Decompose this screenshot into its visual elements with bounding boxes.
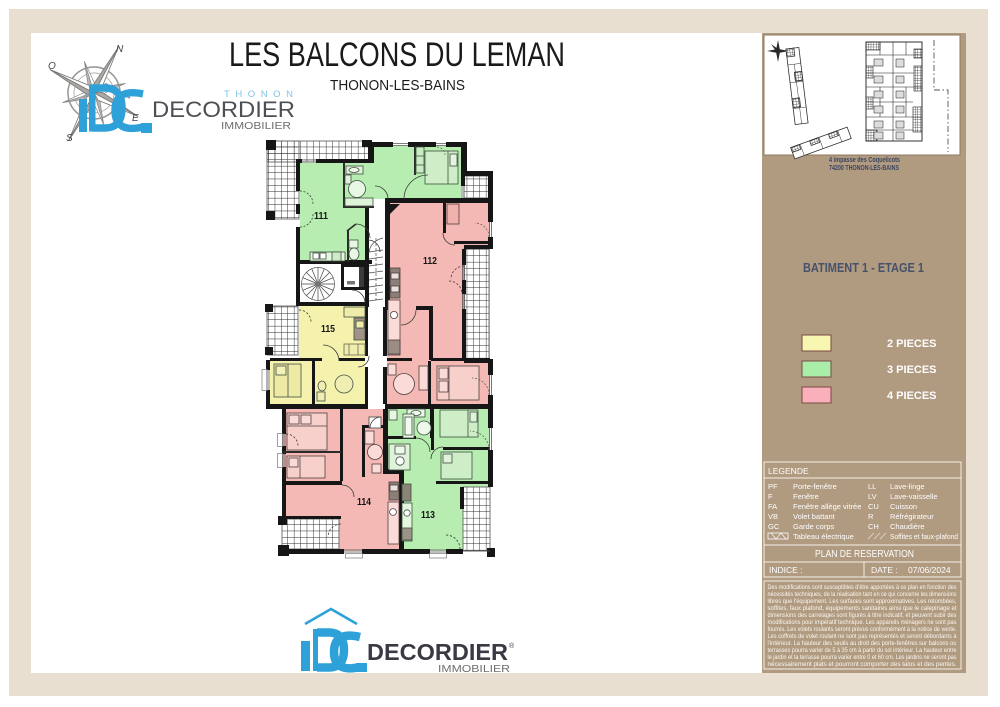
svg-text:Chaudière: Chaudière <box>890 522 925 531</box>
svg-text:Des modifications sont suscept: Des modifications sont susceptibles d'êt… <box>768 584 957 591</box>
svg-text:Réfrégirateur: Réfrégirateur <box>890 512 934 521</box>
svg-text:R: R <box>868 512 874 521</box>
svg-text:Les coffrets de volet roulant: Les coffrets de volet roulant ne sont pa… <box>768 633 957 640</box>
svg-text:BATIMENT 1 - ETAGE 1: BATIMENT 1 - ETAGE 1 <box>803 260 924 275</box>
svg-text:F: F <box>768 492 773 501</box>
svg-text:INDICE :: INDICE : <box>769 565 803 575</box>
svg-text:112: 112 <box>423 255 437 267</box>
svg-text:l'intérieur. La hauteur des se: l'intérieur. La hauteur des seuils au dr… <box>768 640 957 647</box>
svg-text:LES BALCONS DU LEMAN: LES BALCONS DU LEMAN <box>229 36 565 74</box>
svg-text:Volet battant: Volet battant <box>793 512 836 521</box>
svg-text:113: 113 <box>421 509 435 521</box>
svg-text:Lave-linge: Lave-linge <box>890 482 925 491</box>
svg-text:LL: LL <box>868 482 876 491</box>
svg-text:74200 THONON-LES-BAINS: 74200 THONON-LES-BAINS <box>829 165 899 172</box>
svg-text:modifications pour impératif t: modifications pour impératif technique. … <box>768 619 957 626</box>
svg-text:terrasses pourra varier de 5 à: terrasses pourra varier de 5 à 35 cm à p… <box>768 647 957 654</box>
svg-text:Soffites et faux-plafond: Soffites et faux-plafond <box>890 532 958 541</box>
svg-text:nécessairement plats et pourro: nécessairement plats et pourront comport… <box>768 661 957 668</box>
svg-text:dimensions des carrelages sont: dimensions des carrelages sont figurés à… <box>768 612 957 619</box>
svg-text:Lave-vaisselle: Lave-vaisselle <box>890 492 938 501</box>
svg-text:IMMOBILIER: IMMOBILIER <box>221 120 291 132</box>
svg-text:2 PIECES: 2 PIECES <box>887 338 937 350</box>
svg-text:GC: GC <box>768 522 780 531</box>
svg-text:THONON-LES-BAINS: THONON-LES-BAINS <box>330 78 465 94</box>
svg-text:07/06/2024: 07/06/2024 <box>908 565 951 575</box>
svg-text:111: 111 <box>314 210 328 222</box>
svg-text:Porte-fenêtre: Porte-fenêtre <box>793 482 837 491</box>
svg-text:O: O <box>48 61 56 72</box>
svg-text:IMMOBILIER: IMMOBILIER <box>438 663 510 675</box>
svg-text:Garde corps: Garde corps <box>793 522 835 531</box>
svg-text:PF: PF <box>768 482 778 491</box>
svg-text:DECORDIER: DECORDIER <box>152 97 295 122</box>
svg-text:115: 115 <box>321 323 335 335</box>
svg-text:PLAN DE RESERVATION: PLAN DE RESERVATION <box>815 549 914 560</box>
svg-text:4 PIECES: 4 PIECES <box>887 390 937 402</box>
svg-text:DECORDIER: DECORDIER <box>367 639 508 665</box>
svg-text:Fenêtre allège vitrée: Fenêtre allège vitrée <box>793 502 861 511</box>
svg-text:S: S <box>66 133 73 144</box>
svg-text:CH: CH <box>868 522 879 531</box>
svg-text:4 impasse des Coquelicots: 4 impasse des Coquelicots <box>829 157 900 164</box>
svg-text:E: E <box>132 113 139 124</box>
svg-text:Cuisson: Cuisson <box>890 502 917 511</box>
svg-text:LV: LV <box>868 492 877 501</box>
svg-text:®: ® <box>509 642 515 650</box>
svg-text:N: N <box>116 44 124 55</box>
svg-text:Tableau électrique: Tableau électrique <box>793 532 854 541</box>
svg-text:Fenêtre: Fenêtre <box>793 492 819 501</box>
svg-text:le jardin et la terrasse pourr: le jardin et la terrasse pourra varier e… <box>768 654 957 661</box>
svg-text:libres que l'équipement. Les s: libres que l'équipement. Les surfaces so… <box>768 598 957 605</box>
svg-text:soffites, faux plafond, équipe: soffites, faux plafond, équipements sani… <box>768 605 957 612</box>
svg-text:CU: CU <box>868 502 879 511</box>
svg-text:3 PIECES: 3 PIECES <box>887 364 937 376</box>
svg-text:VB: VB <box>768 512 778 521</box>
svg-text:DATE :: DATE : <box>871 565 898 575</box>
svg-text:fournis. Les volets roulants s: fournis. Les volets roulants seront prév… <box>768 626 957 633</box>
svg-text:nécessités techniques, de la r: nécessités techniques, de la réalisation… <box>768 591 957 598</box>
svg-text:LEGENDE: LEGENDE <box>768 466 809 476</box>
svg-text:114: 114 <box>357 496 371 508</box>
svg-text:FA: FA <box>768 502 777 511</box>
